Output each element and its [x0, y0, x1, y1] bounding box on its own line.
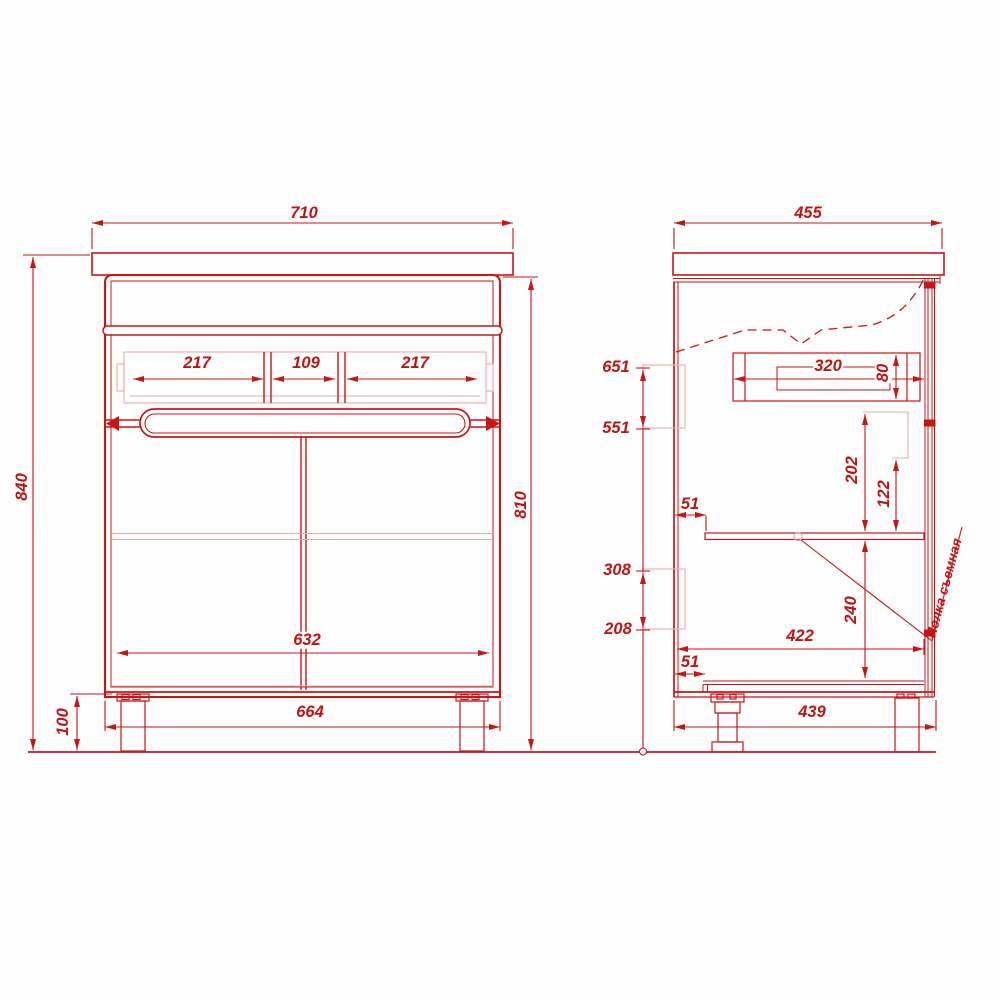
dim-level-651: 651 [601, 359, 631, 376]
dim-bottom-inset: 51 [680, 654, 700, 671]
dim-drawer-depth: 320 [813, 358, 843, 375]
dimension-lines [23, 223, 942, 755]
technical-drawing-canvas: 710 840 100 810 217 109 217 632 664 455 … [0, 0, 1000, 1000]
dim-side-inner-depth: 422 [785, 628, 815, 645]
dim-202: 202 [844, 455, 861, 485]
drawing-linework [0, 0, 1000, 1000]
dim-drawer-section-left: 217 [182, 355, 212, 372]
dim-level-551: 551 [601, 420, 631, 437]
front-countertop [92, 253, 513, 275]
dim-122: 122 [876, 479, 893, 509]
side-shelf [705, 533, 924, 540]
dim-front-overall-height: 840 [14, 472, 31, 502]
dim-shelf-inset: 51 [680, 496, 700, 513]
front-view [92, 253, 513, 751]
dim-drawer-section-right: 217 [400, 355, 430, 372]
dim-side-leg-span: 439 [797, 704, 827, 721]
dim-front-inner-width: 632 [292, 632, 322, 649]
side-sink-outline [676, 277, 924, 352]
front-top-rail [103, 326, 502, 335]
dim-drawer-height: 80 [875, 363, 892, 383]
dim-front-body-height: 810 [513, 490, 530, 520]
side-countertop [673, 253, 944, 275]
dim-front-leg-height: 100 [55, 707, 72, 737]
dim-front-leg-span: 664 [295, 704, 325, 721]
dim-front-top-width: 710 [289, 205, 319, 222]
dim-level-308: 308 [602, 562, 632, 579]
dim-level-208: 208 [603, 621, 633, 638]
dim-side-depth: 455 [793, 205, 823, 222]
dim-drawer-section-middle: 109 [291, 355, 321, 372]
dim-240: 240 [843, 595, 860, 625]
